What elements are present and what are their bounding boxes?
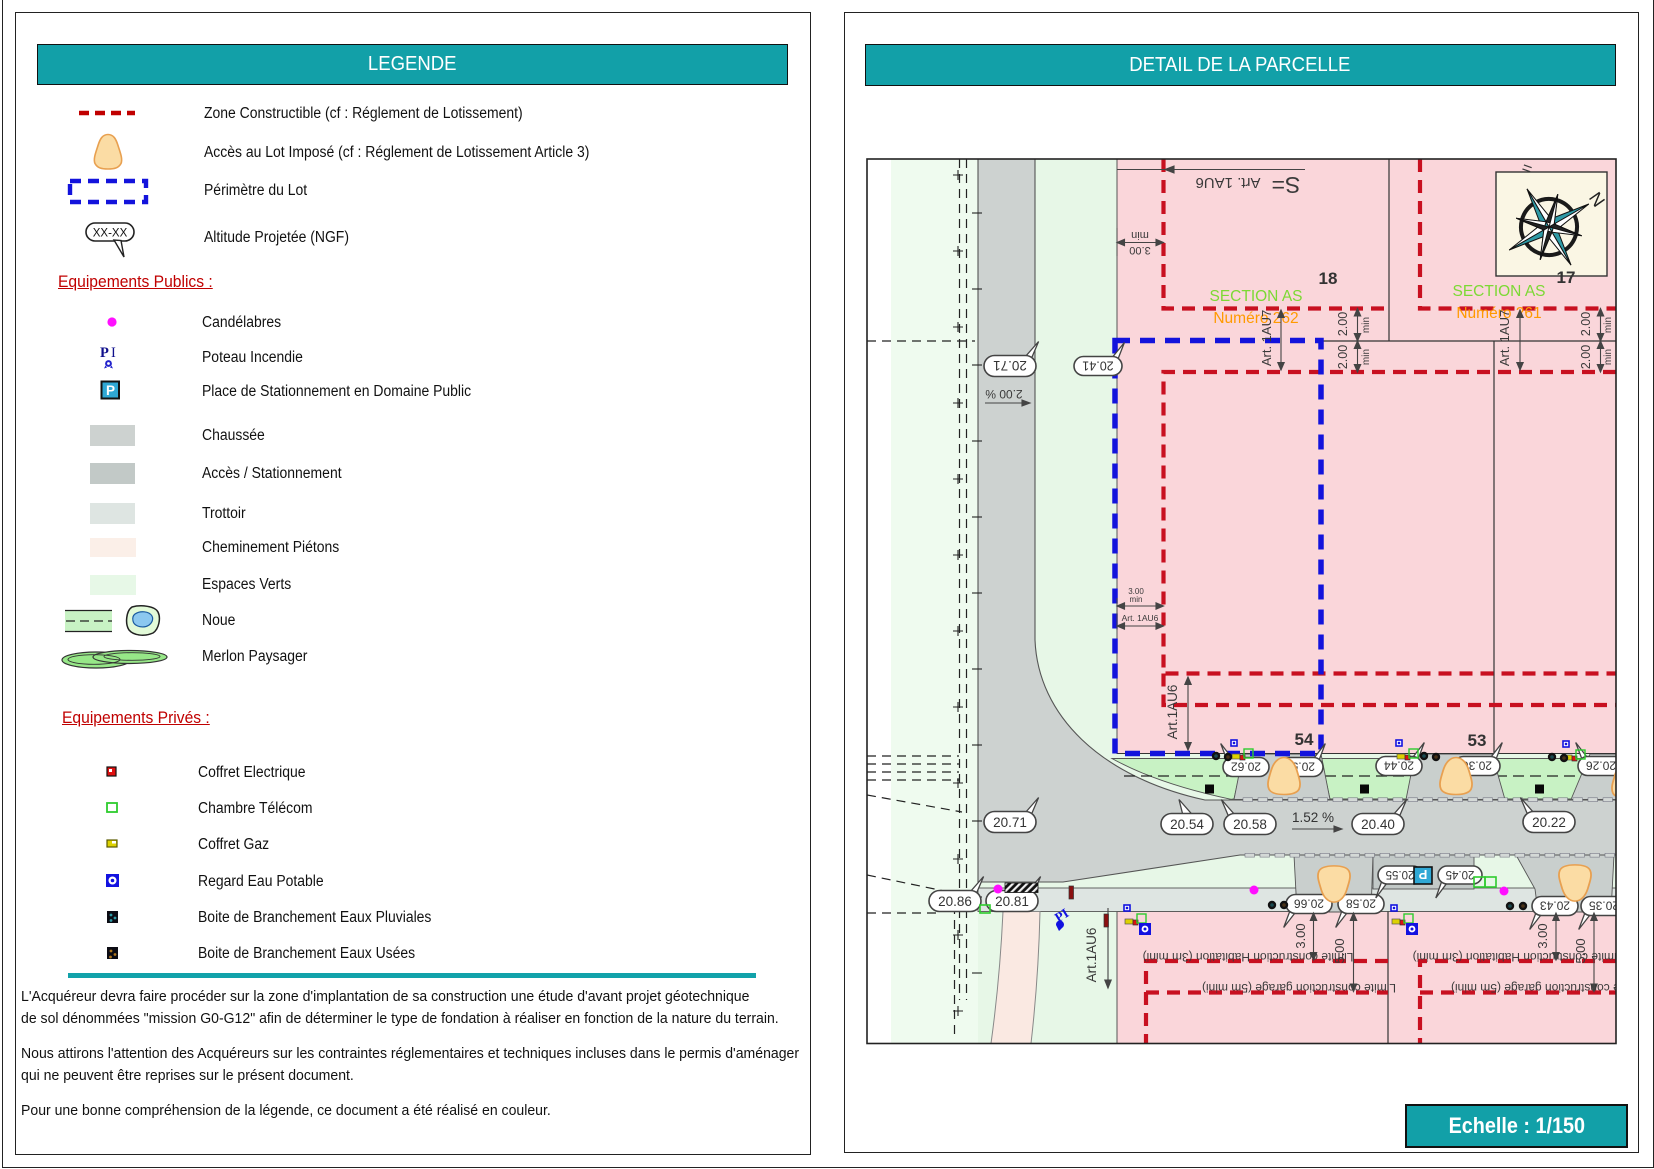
svg-text:2.00: 2.00 [1579, 312, 1593, 336]
svg-text:Art. 1AU6: Art. 1AU6 [1122, 613, 1159, 623]
svg-text:54: 54 [1295, 730, 1314, 749]
svg-text:min: min [1603, 349, 1614, 365]
svg-text:SECTION AS: SECTION AS [1452, 283, 1545, 300]
svg-text:20.40: 20.40 [1361, 817, 1395, 832]
svg-text:1.52 %: 1.52 % [1292, 810, 1334, 825]
svg-text:20.71: 20.71 [993, 358, 1027, 373]
svg-text:S=: S= [1272, 172, 1301, 198]
svg-text:min: min [1361, 317, 1372, 333]
svg-text:Numéro 262: Numéro 262 [1213, 310, 1298, 327]
svg-text:3.00: 3.00 [1535, 923, 1550, 948]
svg-text:P: P [1418, 867, 1427, 882]
svg-text:Art. 1AU7: Art. 1AU7 [1497, 310, 1512, 366]
svg-text:2.00: 2.00 [1336, 312, 1350, 336]
svg-text:min: min [1603, 317, 1614, 333]
svg-text:min: min [1361, 349, 1372, 365]
svg-text:20.66: 20.66 [1294, 897, 1324, 911]
svg-text:20.41: 20.41 [1082, 359, 1113, 373]
svg-text:2.00: 2.00 [1336, 345, 1350, 369]
svg-text:Limite construction Habitation: Limite construction Habitation (3m mini) [1413, 950, 1624, 964]
svg-text:20.45: 20.45 [1446, 868, 1475, 880]
svg-text:20.58: 20.58 [1233, 817, 1267, 832]
svg-text:Art. 1AU7: Art. 1AU7 [1259, 310, 1274, 366]
svg-text:2.00 %: 2.00 % [985, 387, 1023, 401]
svg-text:min: min [1130, 595, 1143, 604]
svg-text:Limite construction garage (5m: Limite construction garage (5m mini) [1202, 981, 1396, 995]
svg-text:3.00: 3.00 [1129, 244, 1150, 256]
svg-text:SECTION AS: SECTION AS [1209, 288, 1302, 305]
svg-text:20.35: 20.35 [1589, 899, 1619, 913]
svg-text:20.54: 20.54 [1170, 817, 1204, 832]
svg-text:20.71: 20.71 [993, 815, 1027, 830]
svg-text:20.26: 20.26 [1586, 759, 1616, 773]
svg-text:20.86: 20.86 [938, 894, 972, 909]
svg-text:20.55: 20.55 [1386, 868, 1415, 880]
svg-text:20.43: 20.43 [1540, 899, 1570, 913]
svg-text:20.58: 20.58 [1346, 897, 1376, 911]
svg-text:2.00: 2.00 [1579, 345, 1593, 369]
svg-text:17: 17 [1557, 268, 1576, 287]
svg-text:3.00: 3.00 [1293, 923, 1308, 948]
svg-text:18: 18 [1319, 269, 1338, 288]
svg-text:Art. 1AU6: Art. 1AU6 [1195, 174, 1260, 191]
svg-text:min: min [1131, 229, 1149, 241]
svg-text:20.81: 20.81 [995, 894, 1029, 909]
svg-text:20.44: 20.44 [1384, 759, 1414, 773]
svg-text:Limite construction Habitation: Limite construction Habitation (3m mini) [1143, 950, 1354, 964]
svg-text:53: 53 [1468, 731, 1487, 750]
svg-text:Art.1AU6: Art.1AU6 [1165, 685, 1180, 740]
svg-text:20.22: 20.22 [1532, 815, 1566, 830]
svg-text:Art.1AU6: Art.1AU6 [1084, 928, 1099, 983]
svg-text:20.62: 20.62 [1231, 760, 1261, 774]
